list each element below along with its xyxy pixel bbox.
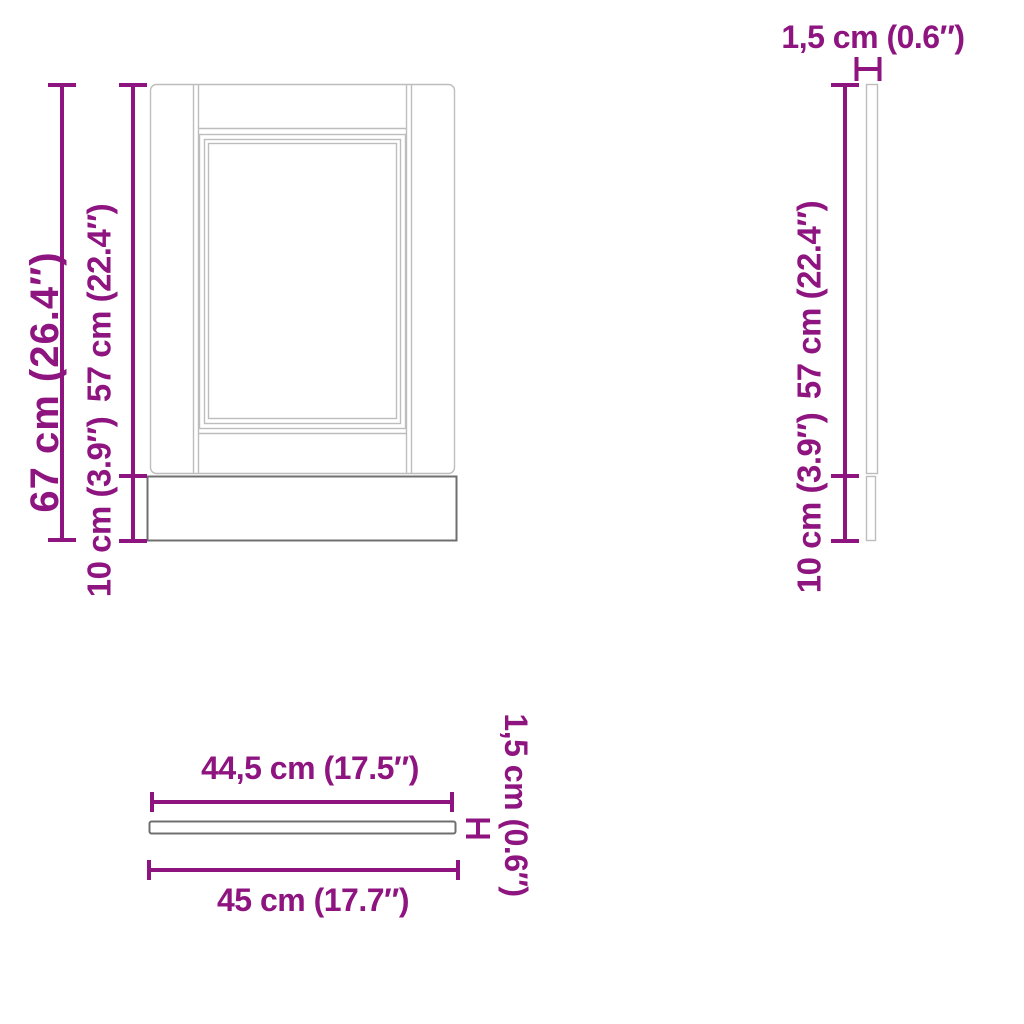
front-plinth-outline bbox=[148, 477, 457, 541]
top-thickness-dimension-marker bbox=[466, 821, 490, 837]
front-total-height-label: 67 cm (26.4″) bbox=[25, 251, 65, 512]
side-plinth-height-label: 10 cm (3.9″) bbox=[793, 413, 826, 593]
top-inner-width-dimension-line bbox=[152, 792, 452, 812]
side-plinth-outline bbox=[867, 477, 876, 541]
side-height-dimension-line bbox=[831, 85, 859, 541]
top-inner-width-label: 44,5 cm (17.5″) bbox=[201, 752, 419, 784]
side-door-height-label: 57 cm (22.4″) bbox=[793, 201, 826, 399]
front-door-height-label: 57 cm (22.4″) bbox=[83, 204, 116, 402]
side-door-outline bbox=[867, 85, 878, 474]
top-outer-width-dimension-line bbox=[149, 860, 458, 880]
front-door-plinth-dimension-line bbox=[119, 85, 147, 541]
front-view-diagram bbox=[148, 85, 457, 541]
side-view-diagram bbox=[867, 85, 878, 541]
top-outer-width-label: 45 cm (17.7″) bbox=[217, 884, 409, 916]
side-thickness-dimension-marker bbox=[857, 57, 880, 81]
top-panel-outline bbox=[150, 822, 456, 834]
side-thickness-label: 1,5 cm (0.6″) bbox=[781, 21, 964, 53]
front-plinth-height-label: 10 cm (3.9″) bbox=[83, 417, 116, 597]
top-view-diagram bbox=[150, 822, 456, 834]
top-thickness-label: 1,5 cm (0.6″) bbox=[500, 713, 532, 896]
dimension-diagram: 67 cm (26.4″) 57 cm (22.4″) 10 cm (3.9″)… bbox=[0, 0, 1024, 1024]
